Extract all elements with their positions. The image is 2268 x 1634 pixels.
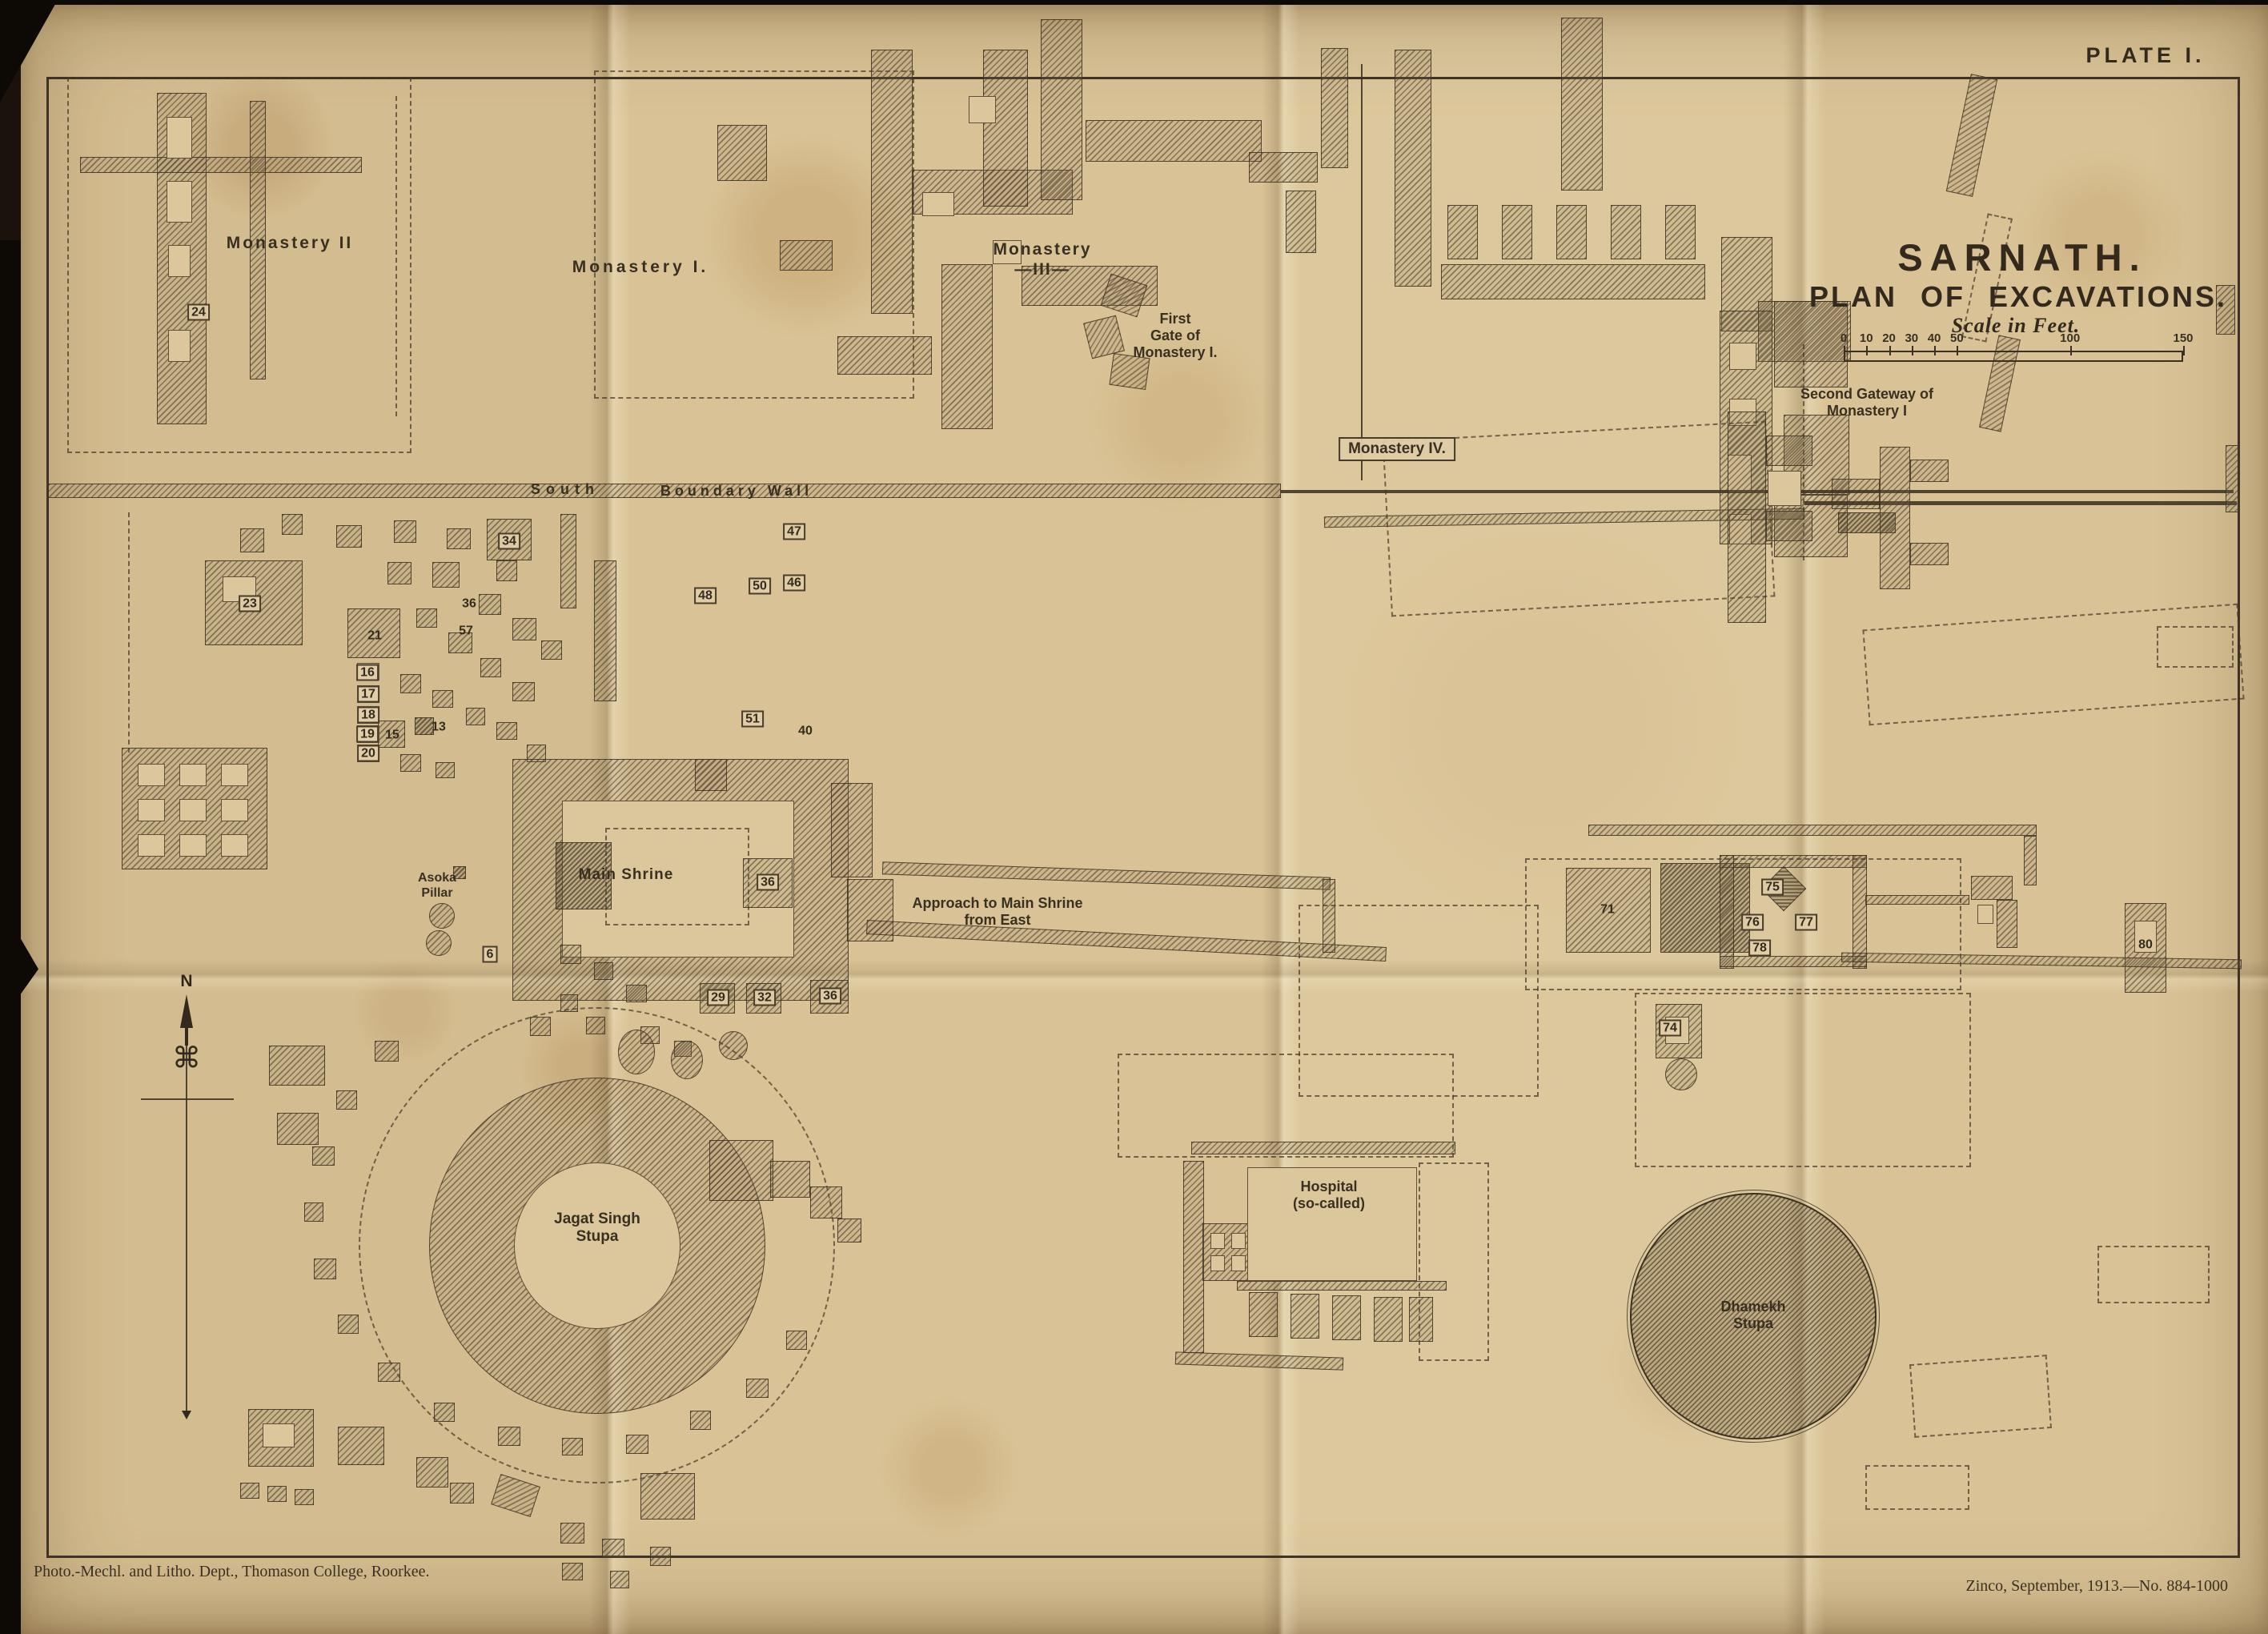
marker-6: 6 [483,946,498,963]
plan-structure [240,528,264,552]
plan-structure [1729,343,1756,370]
marker-77: 77 [1795,914,1817,931]
scale-tick [2183,346,2185,355]
plan-structure [221,764,248,786]
plan-structure [1249,152,1318,183]
plan-structure [560,514,576,608]
plan-structure [387,562,411,584]
plan-structure [1231,1255,1246,1271]
plan-structure [1395,50,1431,287]
plan-structure [2157,626,2234,668]
plan-structure [1210,1255,1225,1271]
print-run-note: Zinco, September, 1913.—No. 884-1000 [1966,1577,2228,1596]
plan-structure [1804,501,2237,505]
marker-29: 29 [707,990,729,1006]
plan-structure [480,658,501,677]
scan-edge-shadow [0,0,2268,5]
marker-46: 46 [783,575,805,592]
plan-structure [277,1113,319,1145]
scale-bar-line [1844,360,2183,362]
plan-structure [336,525,362,548]
plan-structure [1774,301,1848,387]
plan-structure [640,1473,695,1520]
plan-structure [1210,1233,1225,1249]
scale-tick-label: 20 [1882,331,1896,345]
plan-structure [983,50,1028,207]
marker-76: 76 [1741,914,1764,931]
plan-structure [434,1403,455,1422]
plan-structure [338,1315,359,1334]
plan-structure [746,1379,769,1398]
marker-50: 50 [749,578,771,595]
plan-structure [837,336,932,375]
plan-structure [1409,1297,1433,1342]
plan-structure [1502,205,1532,259]
label-monastery-ii: Monastery II [227,234,354,254]
plan-structure [602,1539,624,1558]
plan-structure [1880,447,1910,589]
plan-structure [263,1423,295,1447]
plan-structure [562,1563,583,1580]
marker-47: 47 [783,524,805,540]
plan-structure [626,1435,648,1454]
marker-24: 24 [187,304,210,321]
plan-structure [426,930,452,956]
marker-34: 34 [498,533,520,550]
plan-structure [695,759,727,791]
plan-structure [941,264,993,429]
plan-structure [594,962,613,980]
plan-structure [221,799,248,821]
plan-structure [394,520,416,543]
map-subtitle: PLAN OF EXCAVATIONS. [1809,280,2227,314]
plan-structure [128,512,130,753]
scale-tick-label: 100 [2060,331,2080,345]
marker-17: 17 [357,686,379,703]
plan-structure [1588,825,2037,836]
plan-structure [1611,205,1641,259]
plan-structure [512,682,535,701]
plan-structure [138,764,165,786]
marker-16: 16 [356,664,379,681]
plan-structure [267,1486,287,1502]
label-south-boundary-wall-south: South [531,481,600,498]
plan-structure [496,722,517,740]
label-main-shrine: Main Shrine [579,866,674,884]
plan-structure [541,640,562,660]
plan-structure [179,799,207,821]
plan-structure [1183,1161,1204,1353]
plan-structure [1286,191,1316,253]
scale-tick [2070,346,2072,355]
plan-structure [922,192,954,216]
label-hospital-so-called: Hospital(so-called) [1293,1178,1365,1212]
plan-structure [1332,1295,1361,1340]
plan-structure [179,834,207,857]
plan-structure [1041,19,1082,200]
plan-structure [650,1547,671,1566]
plan-structure [138,834,165,857]
marker-20: 20 [357,745,379,762]
plan-structure [67,77,411,453]
scan-edge-shadow [0,240,21,1634]
label-south-boundary-wall-boundary-wall: Boundary Wall [660,483,813,500]
plan-structure [770,1161,810,1198]
label-dhamekh-stupa: DhamekhStupa [1720,1299,1785,1332]
marker-78: 78 [1748,940,1771,957]
plan-structure [312,1146,335,1166]
marker-19: 19 [356,726,379,743]
scale-tick [1957,346,1958,355]
compass-crossbar [141,1098,234,1100]
plan-structure [375,1041,399,1062]
plan-structure [2226,445,2238,512]
plan-structure [400,674,421,693]
plan-structure [432,690,453,708]
plan-structure [626,985,647,1002]
scale-tick [1866,346,1868,355]
plan-structure [240,1483,259,1499]
scale-tick-label: 40 [1928,331,1941,345]
marker-40: 40 [798,725,813,738]
scale-tick-label: 50 [1950,331,1964,345]
plan-structure [436,762,455,778]
marker-18: 18 [357,707,379,724]
marker-80: 80 [2138,938,2153,952]
label-monastery-iii: Monastery—III— [993,240,1091,280]
plan-structure [871,50,913,314]
scale-tick-label: 30 [1905,331,1918,345]
plan-structure [269,1046,325,1086]
plan-structure [780,240,833,271]
plan-structure [179,764,207,786]
plan-structure [1556,205,1587,259]
plan-structure [1910,543,1949,565]
plan-structure [416,1457,448,1487]
label-monastery-i: Monastery I. [572,258,709,278]
plan-structure [338,1427,384,1465]
plan-structure [1728,412,1766,623]
scale-bar-line [1844,351,2183,352]
plan-structure [560,1523,584,1544]
printer-credit: Photo.-Mechl. and Litho. Dept., Thomason… [34,1563,430,1581]
label-first-gate-of-monastery-i: FirstGate ofMonastery I. [1133,311,1217,362]
north-arrow-line [186,1046,187,1415]
marker-36: 36 [819,988,841,1005]
plan-structure [432,562,460,588]
plan-structure [1191,1142,1455,1154]
plan-structure [562,1438,583,1455]
plan-structure [1231,1233,1246,1249]
plan-structure [2097,1246,2210,1303]
plan-structure [400,754,421,772]
marker-71: 71 [1600,903,1615,917]
plan-structure [1977,905,1993,924]
marker-51: 51 [741,711,764,728]
plan-structure [466,708,485,725]
marker-36: 36 [757,874,779,891]
scale-tick-label: 0 [1840,331,1847,345]
plan-structure [1766,511,1812,541]
plan-structure [1202,1223,1252,1281]
plan-structure [1665,205,1696,259]
plan-structure [717,125,767,181]
plan-structure [1237,1281,1447,1291]
plan-structure [1997,900,2017,948]
plan-structure [690,1411,711,1430]
plate-number: PLATE I. [2085,43,2205,68]
plan-structure [1086,120,1262,162]
plan-structure [447,528,471,549]
plan-structure [1635,993,1971,1167]
scale-tick-label: 150 [2173,331,2193,345]
plan-structure [450,1483,474,1504]
label-jagat-singh-stupa: Jagat SinghStupa [554,1210,640,1247]
plan-structure [1909,1355,2052,1438]
marker-57: 57 [459,624,473,638]
plan-structure [1766,436,1812,466]
north-label: N [180,972,192,991]
plan-structure [138,799,165,821]
scale-tick [1889,346,1891,355]
plan-structure [1299,905,1539,1097]
marker-48: 48 [694,588,717,604]
plan-structure [837,1218,861,1243]
map-title: SARNATH. [1897,235,2146,279]
scale-bar: 01020304050100150 [1844,339,2183,367]
plan-structure [610,1571,629,1588]
plan-structure [336,1090,357,1110]
label-monastery-iv: Monastery IV. [1339,437,1455,461]
plan-structure [560,945,581,964]
scale-tick [1934,346,1936,355]
scale-tick [1844,346,1845,355]
plan-structure [831,783,873,877]
marker-23: 23 [239,596,261,612]
marker-75: 75 [1761,879,1784,896]
plan-structure [786,1331,807,1350]
scale-tick-label: 10 [1860,331,1873,345]
plan-structure [1910,460,1949,482]
plan-structure [1441,264,1705,299]
plan-structure [969,96,996,123]
plan-structure [2024,836,2037,885]
plan-structure [1865,1465,1969,1510]
plan-structure [810,1186,842,1218]
plan-structure [429,903,455,929]
plan-structure [1321,48,1348,168]
north-arrowhead-icon [180,994,193,1028]
plan-structure [498,1427,520,1446]
marker-15: 15 [385,729,399,742]
plan-structure [378,1363,400,1382]
plan-structure [416,608,437,628]
marker-32: 32 [753,990,776,1006]
marker-36: 36 [462,597,476,611]
plan-structure [221,834,248,857]
plan-structure [1768,471,1801,506]
plan-structure [1971,876,2013,900]
plan-structure [282,514,303,535]
plan-structure [1291,1294,1319,1339]
plan-structure [496,560,517,581]
label-second-gateway-of-monastery-i: Second Gateway ofMonastery I [1800,386,1933,420]
plan-structure [295,1489,314,1505]
plan-structure [1561,18,1603,191]
south-arrowhead-icon [182,1411,191,1419]
label-approach-to-main-shrine: Approach to Main Shrinefrom East [912,895,1082,929]
plan-structure [709,1140,773,1201]
marker-74: 74 [1659,1020,1681,1037]
plan-structure [1447,205,1478,259]
marker-21: 21 [367,629,382,643]
plan-structure [1249,1292,1278,1337]
plan-structure [314,1259,336,1279]
plan-structure [1361,64,1363,480]
plan-structure [479,594,501,615]
plan-structure [1374,1297,1403,1342]
marker-13: 13 [432,721,446,734]
plan-structure [594,560,616,701]
label-asoka-pillar: AsokaPillar [418,871,456,901]
plan-structure [395,96,397,416]
scanned-plate: Monastery IIMonastery I.Monastery—III—Fi… [0,0,2268,1634]
plan-structure [304,1202,323,1222]
compass-emblem-icon: ⌘ [172,1042,201,1075]
plan-structure [512,618,536,640]
scale-tick [1912,346,1913,355]
